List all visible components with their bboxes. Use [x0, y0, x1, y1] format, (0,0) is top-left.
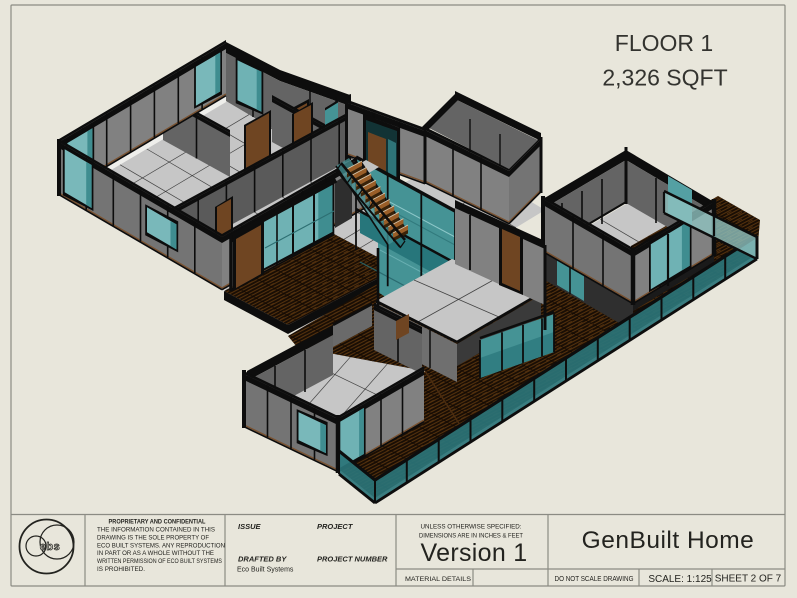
svg-text:PROJECT NUMBER: PROJECT NUMBER [317, 555, 388, 564]
svg-text:GenBuilt Home: GenBuilt Home [582, 527, 755, 554]
svg-text:PROJECT: PROJECT [317, 522, 354, 531]
svg-text:MATERIAL DETAILS: MATERIAL DETAILS [405, 576, 471, 583]
svg-text:Eco Built Systems: Eco Built Systems [237, 567, 294, 574]
svg-text:WRITTEN PERMISSION OF ECO BUIL: WRITTEN PERMISSION OF ECO BUILT SYSTEMS [97, 558, 222, 565]
svg-text:SHEET 2 OF 7: SHEET 2 OF 7 [715, 574, 782, 585]
svg-text:Version 1: Version 1 [421, 539, 528, 567]
svg-text:UNLESS OTHERWISE SPECIFIED:: UNLESS OTHERWISE SPECIFIED: [421, 524, 522, 531]
svg-text:ISSUE: ISSUE [238, 522, 262, 531]
svg-text:DO NOT SCALE DRAWING: DO NOT SCALE DRAWING [555, 576, 634, 583]
svg-text:ECO BUILT SYSTEMS. ANY REPROD: ECO BUILT SYSTEMS. ANY REPRODUCTION [97, 542, 225, 549]
svg-text:THE INFORMATION CONTAINED IN T: THE INFORMATION CONTAINED IN THIS [97, 527, 215, 534]
svg-text:ebs: ebs [40, 541, 60, 553]
svg-text:DRAWING IS THE SOLE PROPERTY O: DRAWING IS THE SOLE PROPERTY OF [97, 534, 209, 541]
svg-text:IS PROHIBITED.: IS PROHIBITED. [97, 566, 145, 573]
svg-text:SCALE: 1:125: SCALE: 1:125 [648, 574, 712, 585]
svg-text:2,326 SQFT: 2,326 SQFT [602, 65, 727, 91]
svg-text:DRAFTED BY: DRAFTED BY [238, 555, 287, 564]
svg-text:FLOOR 1: FLOOR 1 [615, 30, 713, 56]
svg-text:IN PART OR AS A WHOLE WITHOUT: IN PART OR AS A WHOLE WITHOUT THE [97, 550, 214, 557]
svg-text:PROPRIETARY AND CONFIDENTIAL: PROPRIETARY AND CONFIDENTIAL [109, 519, 206, 526]
